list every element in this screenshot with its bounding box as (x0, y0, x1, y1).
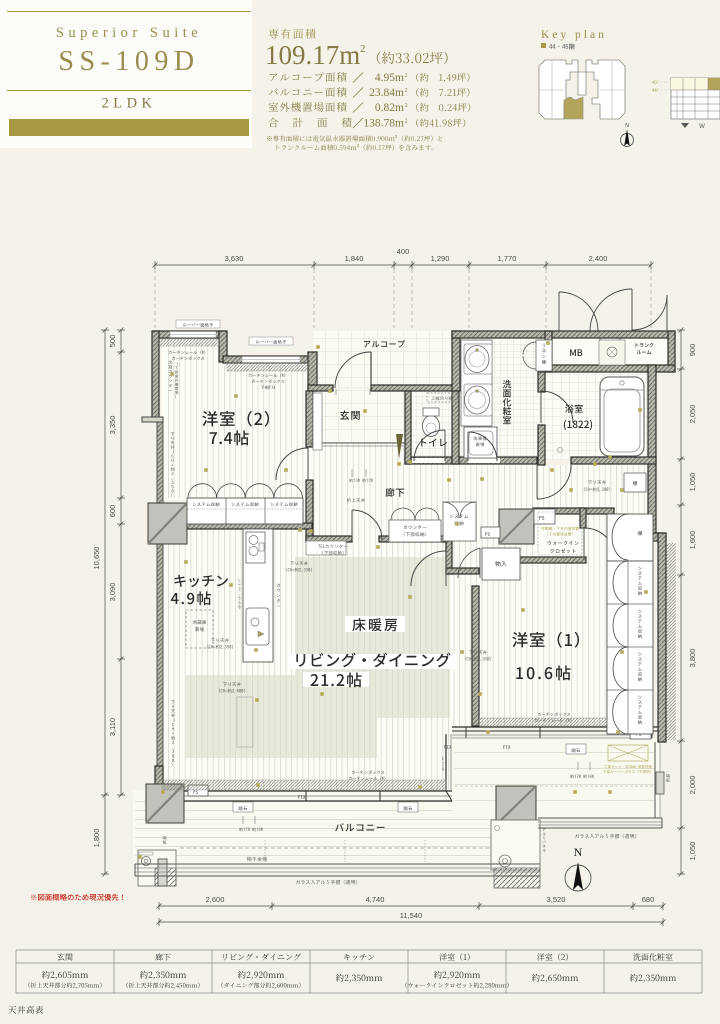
svg-text:400: 400 (397, 247, 410, 256)
svg-text:500: 500 (108, 335, 117, 348)
svg-text:2LDK: 2LDK (101, 96, 156, 112)
svg-text:0.82m: 0.82m (375, 102, 404, 114)
svg-text:3,520: 3,520 (547, 895, 566, 904)
svg-text:N: N (625, 123, 629, 129)
svg-text:1,600: 1,600 (688, 531, 697, 550)
svg-text:W: W (699, 124, 705, 130)
svg-text:3,630: 3,630 (225, 254, 244, 263)
svg-text:2: 2 (360, 43, 366, 55)
svg-text:10,650: 10,650 (92, 547, 101, 570)
svg-text:2,050: 2,050 (688, 405, 697, 424)
svg-text:600: 600 (108, 505, 117, 518)
svg-text:1,840: 1,840 (345, 254, 364, 263)
svg-text:3,800: 3,800 (688, 649, 697, 668)
svg-text:2: 2 (405, 119, 408, 125)
svg-text:23.84m: 23.84m (369, 87, 404, 99)
svg-text:138.78m: 138.78m (363, 118, 404, 130)
svg-text:11,540: 11,540 (400, 911, 422, 920)
svg-text:2: 2 (405, 103, 408, 109)
svg-text:Superior Suite: Superior Suite (56, 25, 202, 41)
svg-text:680: 680 (642, 895, 655, 904)
svg-text:2,000: 2,000 (688, 776, 697, 795)
svg-text:2: 2 (405, 73, 408, 79)
svg-text:3,110: 3,110 (108, 718, 117, 736)
svg-text:1,290: 1,290 (431, 254, 450, 263)
svg-text:2: 2 (405, 88, 408, 94)
svg-text:Key plan: Key plan (541, 29, 607, 41)
svg-text:2,400: 2,400 (589, 254, 608, 263)
svg-text:4.95m: 4.95m (375, 72, 404, 84)
svg-text:1,770: 1,770 (498, 254, 517, 263)
svg-text:900: 900 (688, 344, 697, 357)
svg-text:SS-109D: SS-109D (58, 46, 199, 77)
svg-text:4,740: 4,740 (366, 895, 385, 904)
svg-text:2,600: 2,600 (206, 895, 225, 904)
svg-text:3,090: 3,090 (108, 583, 117, 602)
svg-text:1,050: 1,050 (688, 842, 697, 861)
svg-text:109.17m: 109.17m (265, 40, 360, 70)
svg-text:3,350: 3,350 (108, 416, 117, 435)
svg-text:1,800: 1,800 (92, 829, 101, 848)
svg-text:1,050: 1,050 (688, 473, 697, 492)
svg-text:N: N (574, 845, 583, 859)
